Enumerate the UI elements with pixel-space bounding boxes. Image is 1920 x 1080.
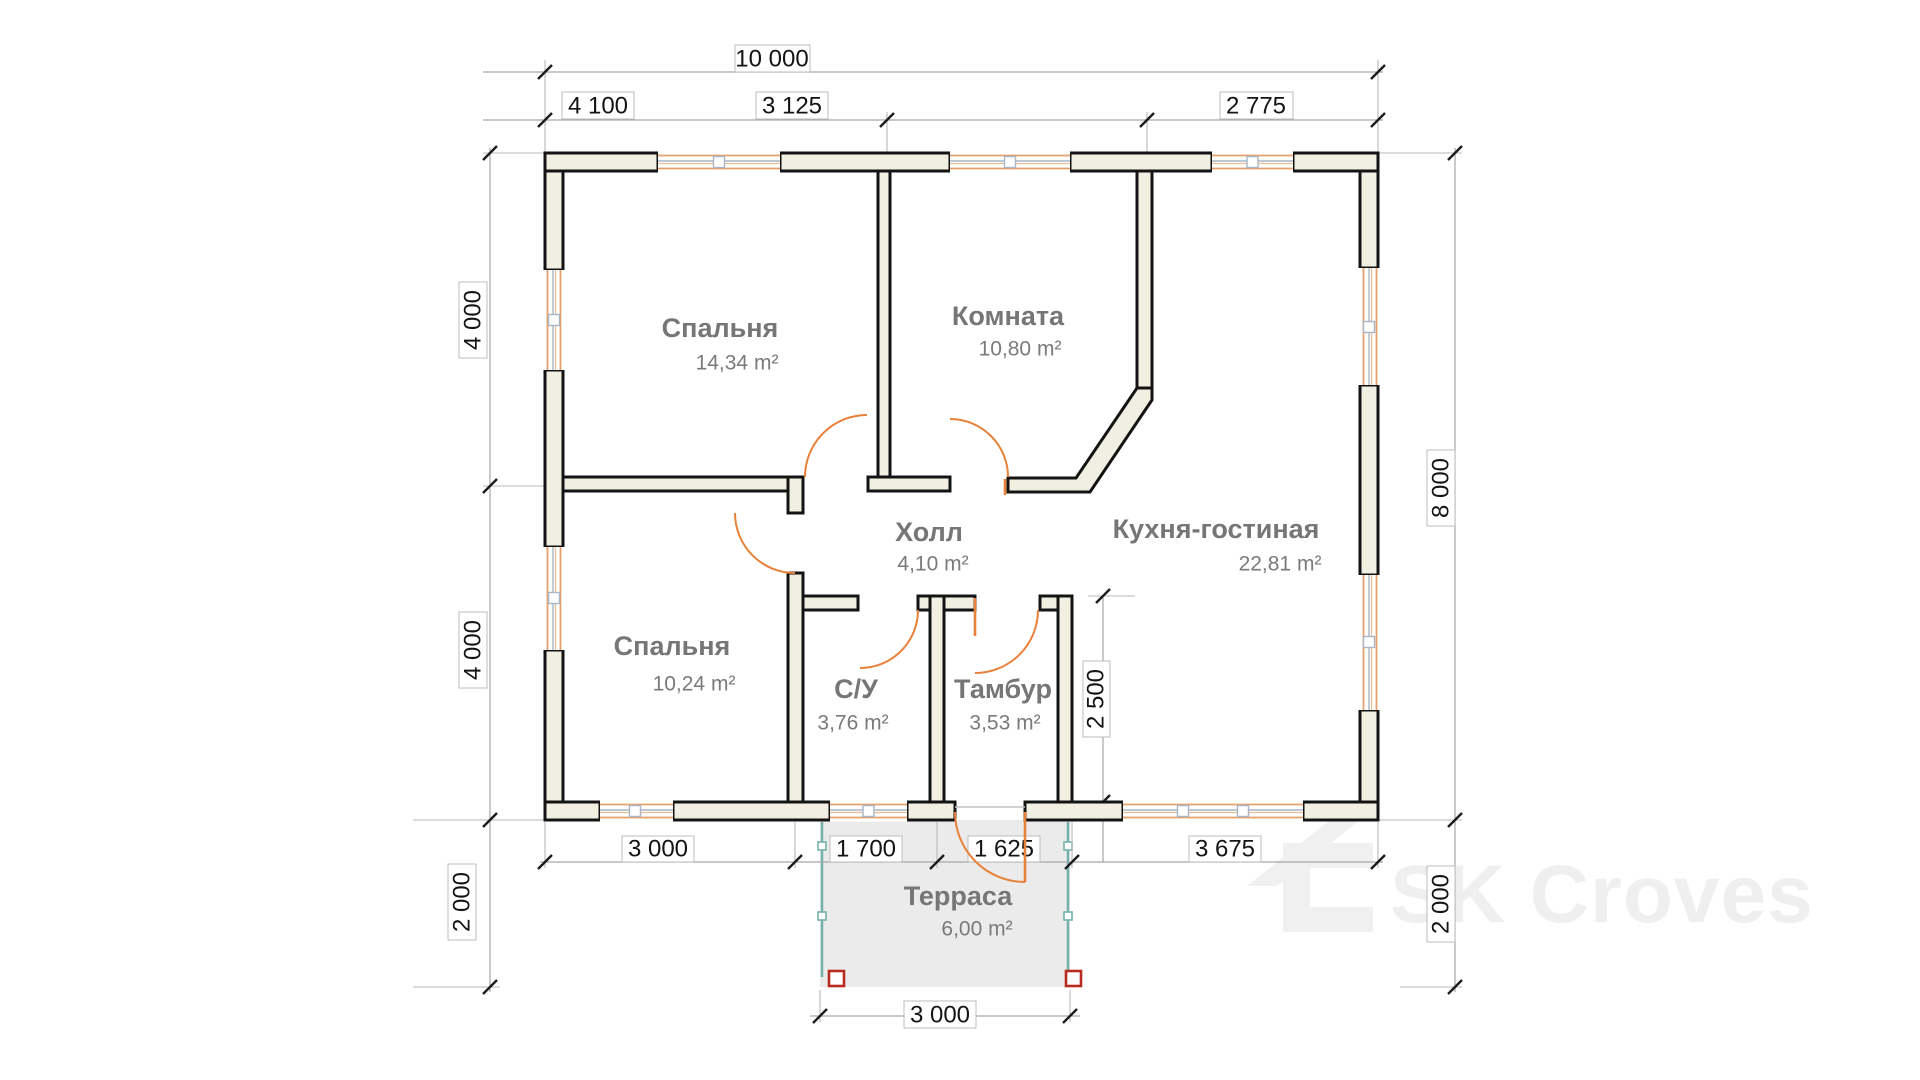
room-area-kitchen-living: 22,81 m² — [1239, 553, 1322, 576]
window — [600, 801, 673, 822]
dim-vestibule-depth: 2 500 — [1083, 669, 1110, 729]
room-label-bathroom: С/У — [834, 674, 879, 704]
watermark: SK Croves — [1247, 820, 1814, 940]
window — [950, 152, 1070, 173]
window — [544, 547, 565, 650]
dim-top-segment-3: 2 775 — [1226, 93, 1286, 120]
dim-top-segment-2: 3 125 — [762, 93, 822, 120]
room-area-terrace: 6,00 m² — [941, 918, 1012, 941]
dim-left-1: 4 000 — [460, 290, 487, 350]
window — [544, 270, 565, 370]
terrace-joint — [1064, 912, 1072, 920]
door-arc-vestibule — [975, 610, 1038, 673]
window — [1359, 268, 1380, 385]
room-area-bedroom1: 14,34 m² — [696, 352, 779, 375]
terrace-joint — [818, 842, 826, 850]
corner-cut-wall — [1008, 388, 1152, 492]
dim-top-segment-1: 4 100 — [568, 93, 628, 120]
room-area-vestibule: 3,53 m² — [969, 712, 1040, 735]
door-arc-bathroom — [860, 610, 918, 668]
window — [658, 152, 780, 173]
watermark-logo-icon — [1283, 843, 1373, 932]
room-area-room: 10,80 m² — [979, 338, 1062, 361]
dim-bottom-segment-4: 3 675 — [1195, 836, 1255, 863]
window — [1212, 152, 1293, 173]
dim-terrace-width: 3 000 — [910, 1002, 970, 1029]
dim-left-3: 2 000 — [449, 872, 476, 932]
interior-walls — [563, 171, 1152, 802]
door-arc-bedroom1 — [805, 415, 867, 477]
terrace-joint — [818, 912, 826, 920]
room-area-bathroom: 3,76 m² — [817, 712, 888, 735]
terrace-joint — [1064, 842, 1072, 850]
room-label-bedroom2: Спальня — [614, 631, 731, 661]
room-label-room: Комната — [952, 301, 1065, 331]
dim-right-1: 8 000 — [1428, 458, 1455, 518]
door-arc-bedroom2 — [735, 513, 795, 573]
room-label-vestibule: Тамбур — [954, 674, 1052, 704]
room-area-bedroom2: 10,24 m² — [653, 673, 736, 696]
dim-top-total: 10 000 — [735, 46, 808, 73]
room-label-kitchen-living: Кухня-гостиная — [1113, 514, 1320, 544]
terrace-anchor-post — [1066, 971, 1081, 986]
window — [1123, 801, 1303, 822]
floor-plan-drawing: SK Croves 10 000 4 100 3 125 2 775 4 000… — [0, 0, 1920, 1080]
window — [830, 801, 907, 822]
room-label-terrace: Терраса — [904, 881, 1014, 911]
dim-bottom-segment-1: 3 000 — [628, 836, 688, 863]
room-label-hall: Холл — [895, 517, 963, 547]
room-area-hall: 4,10 m² — [897, 553, 968, 576]
dim-bottom-segment-2: 1 700 — [836, 836, 896, 863]
window — [1359, 575, 1380, 710]
door-arc-room — [950, 419, 1008, 477]
floor-plan-canvas: SK Croves 10 000 4 100 3 125 2 775 4 000… — [0, 0, 1920, 1080]
dim-right-2: 2 000 — [1428, 874, 1455, 934]
dim-left-2: 4 000 — [460, 620, 487, 680]
room-label-bedroom1: Спальня — [662, 313, 779, 343]
terrace-anchor-post — [829, 971, 844, 986]
